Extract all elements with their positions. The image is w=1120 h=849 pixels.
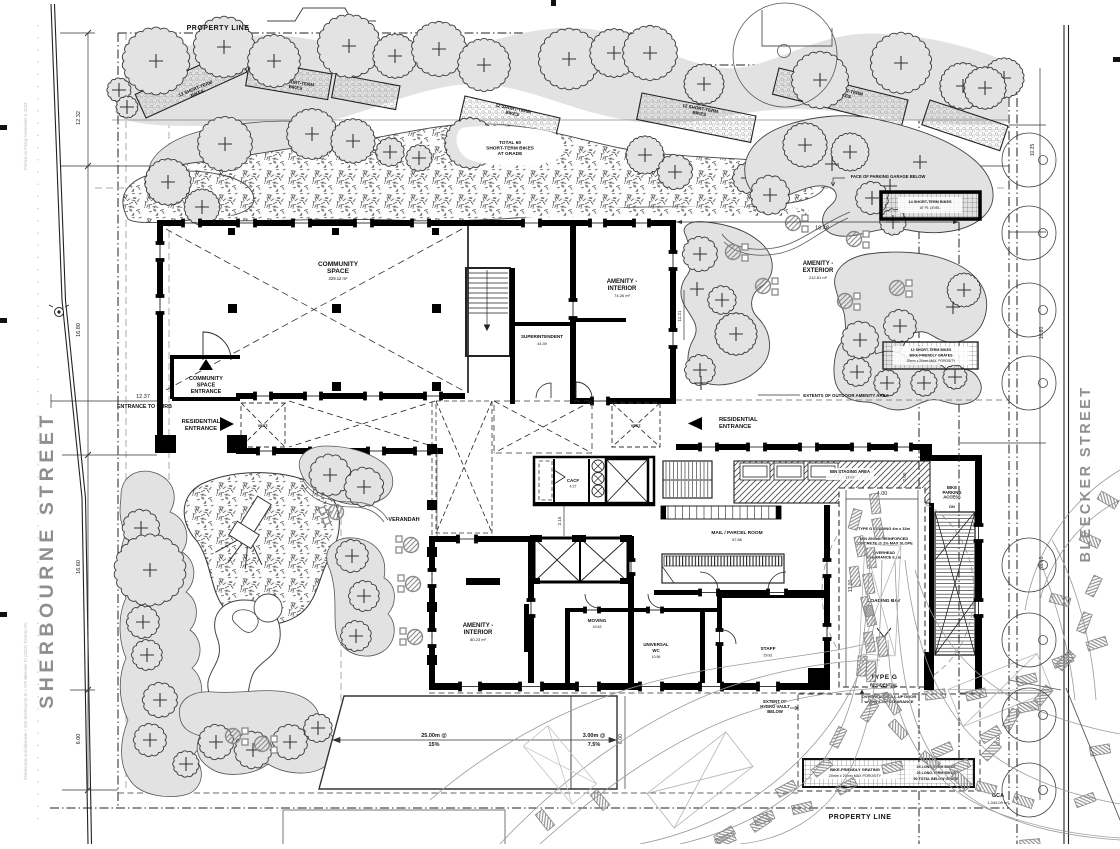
svg-text:EXTENTS OF OUTDOOR AMENITY ARE: EXTENTS OF OUTDOOR AMENITY AREA <box>803 393 889 398</box>
svg-text:12 SHORT-TERM BIKES: 12 SHORT-TERM BIKES <box>911 348 952 352</box>
svg-text:6.00: 6.00 <box>76 734 82 745</box>
svg-text:74.26 m²: 74.26 m² <box>614 293 630 298</box>
svg-text:12.32: 12.32 <box>76 111 82 125</box>
svg-text:SUPERINTENDENT: SUPERINTENDENT <box>521 334 563 339</box>
svg-text:FACE OF PARKING GARAGE BELOW: FACE OF PARKING GARAGE BELOW <box>851 174 926 179</box>
svg-text:16.80: 16.80 <box>76 323 82 337</box>
svg-text:AMENITY -INTERIOR: AMENITY -INTERIOR <box>463 623 494 636</box>
svg-text:VERANDAH: VERANDAH <box>388 517 419 523</box>
svg-text:CACF: CACF <box>567 478 580 483</box>
svg-text:TYPE G LOADING 4m x 13m: TYPE G LOADING 4m x 13m <box>858 526 911 531</box>
svg-text:212.81 m²: 212.81 m² <box>809 275 828 280</box>
svg-text:67.88: 67.88 <box>732 538 742 542</box>
svg-text:AMENITY -INTERIOR: AMENITY -INTERIOR <box>607 279 638 292</box>
svg-text:DN: DN <box>949 505 955 509</box>
svg-text:10.96: 10.96 <box>652 655 661 659</box>
svg-text:SHERBOURNE STREET: SHERBOURNE STREET <box>36 411 58 709</box>
svg-text:RESIDENTIALENTRANCE: RESIDENTIALENTRANCE <box>182 419 221 432</box>
svg-text:16.60: 16.60 <box>76 560 82 574</box>
svg-text:7.5%: 7.5% <box>588 742 601 748</box>
svg-text:18.48: 18.48 <box>815 226 829 232</box>
svg-text:STAFF: STAFF <box>760 646 775 652</box>
svg-text:ENTRANCE TO CURB: ENTRANCE TO CURB <box>117 404 172 410</box>
svg-text:229.12 m²: 229.12 m² <box>329 276 348 281</box>
svg-text:3.00m @: 3.00m @ <box>583 733 606 739</box>
svg-text:BIKE-FRIENDLY GRATES: BIKE-FRIENDLY GRATES <box>909 354 953 358</box>
svg-text:MAIL / PARCEL ROOM: MAIL / PARCEL ROOM <box>711 530 762 536</box>
svg-text:2.00: 2.00 <box>902 472 907 481</box>
svg-text:2.15: 2.15 <box>557 516 562 525</box>
svg-text:4.27: 4.27 <box>570 485 577 489</box>
svg-text:19.63: 19.63 <box>593 625 602 629</box>
svg-text:16.60: 16.60 <box>1039 557 1045 570</box>
svg-text:20mm x 20mm MAX. POROSITY: 20mm x 20mm MAX. POROSITY <box>907 359 957 363</box>
svg-text:BIN STAGING AREA: BIN STAGING AREA <box>830 469 870 474</box>
svg-text:6.00: 6.00 <box>618 734 624 744</box>
svg-text:11.21: 11.21 <box>677 310 682 321</box>
svg-text:VEST.: VEST. <box>258 424 269 428</box>
svg-text:PROPERTY LINE: PROPERTY LINE <box>187 25 250 32</box>
svg-text:15%: 15% <box>428 742 439 748</box>
svg-text:14 SHORT-TERM BIKES: 14 SHORT-TERM BIKES <box>908 200 952 204</box>
svg-text:20mm x 20mm MAX POROSITY: 20mm x 20mm MAX POROSITY <box>829 774 882 778</box>
svg-text:VEST.: VEST. <box>631 424 642 428</box>
svg-text:UNIVERSAL: UNIVERSAL <box>643 642 669 647</box>
svg-text:29.81: 29.81 <box>764 654 773 658</box>
svg-text:AT P1 LEVEL: AT P1 LEVEL <box>920 206 941 210</box>
svg-text:Sherbourne and Bleecker + 500: Sherbourne and Bleecker + 500 Sherbourne… <box>23 622 28 780</box>
svg-text:44.39: 44.39 <box>537 342 547 346</box>
svg-text:BIKE-FRIENDLY GRATING: BIKE-FRIENDLY GRATING <box>830 767 880 772</box>
svg-text:WC: WC <box>652 648 660 653</box>
svg-text:Printed on Friday November 3,: Printed on Friday November 3, 2023 <box>23 102 28 170</box>
svg-text:80.23 m²: 80.23 m² <box>470 637 486 642</box>
svg-text:MOVING: MOVING <box>588 618 607 623</box>
svg-text:12.37: 12.37 <box>136 394 150 400</box>
svg-text:25.00m @: 25.00m @ <box>421 733 447 739</box>
svg-text:13 m²: 13 m² <box>845 476 855 480</box>
svg-text:PROPERTY LINE: PROPERTY LINE <box>829 814 892 821</box>
svg-text:10.35: 10.35 <box>1030 144 1036 157</box>
svg-text:AMENITY -EXTERIOR: AMENITY -EXTERIOR <box>803 261 834 274</box>
svg-text:16.60: 16.60 <box>1039 327 1045 340</box>
